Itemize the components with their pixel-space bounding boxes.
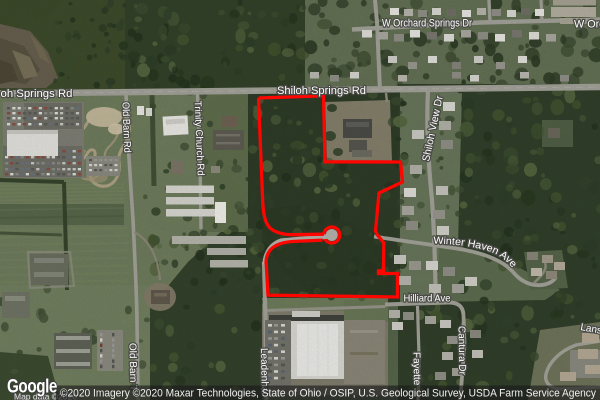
svg-text:Cantura Dr: Cantura Dr [456,326,468,376]
svg-text:©2020 Imagery ©2020 Maxar Tech: ©2020 Imagery ©2020 Maxar Technologies, … [60,388,597,400]
svg-text:Hilliard Ave: Hilliard Ave [404,294,451,305]
svg-text:W Orch: W Orch [574,19,600,31]
svg-text:Fayette: Fayette [411,352,423,386]
svg-text:W Orchard Springs Dr: W Orchard Springs Dr [382,18,472,30]
svg-text:oh Springs Rd: oh Springs Rd [1,88,73,100]
svg-text:Old Barn Rd: Old Barn Rd [120,102,133,153]
svg-text:Google: Google [7,377,57,398]
svg-text:Shiloh Springs Rd: Shiloh Springs Rd [277,85,366,97]
svg-text:Old Barn T: Old Barn T [127,343,139,391]
